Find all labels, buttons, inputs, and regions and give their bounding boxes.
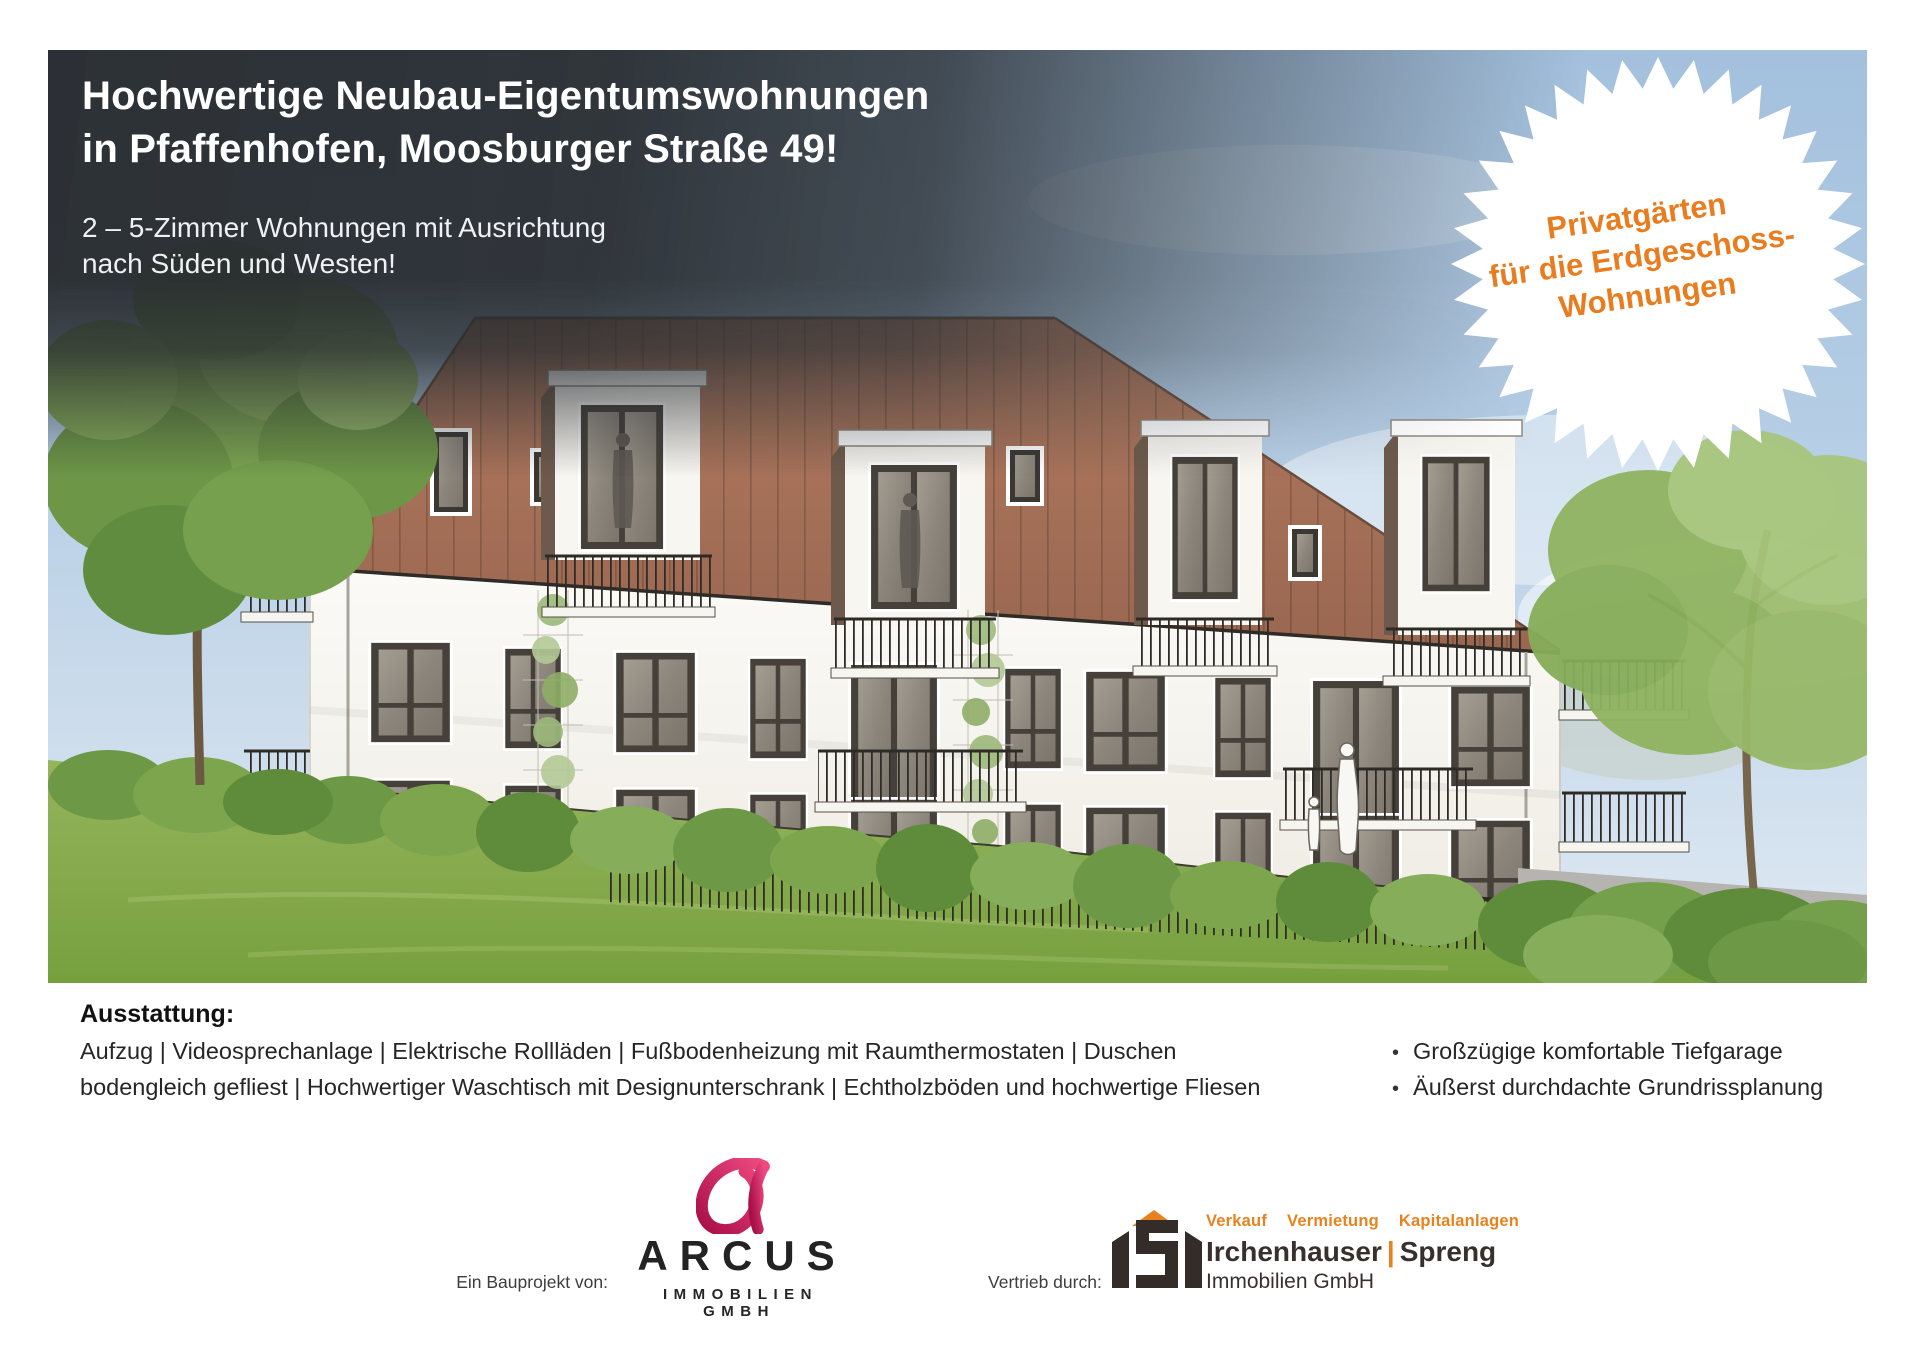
service-item: Verkauf [1206,1212,1267,1230]
hero-title-line1: Hochwertige Neubau-Eigentumswohnungen [82,70,929,123]
arcus-ribbon-icon [696,1158,782,1234]
features-bullet-item: •Großzügige komfortable Tiefgarage [1392,1038,1783,1065]
hero-subtitle: 2 – 5-Zimmer Wohnungen mit Ausrichtung n… [82,210,606,282]
distributor-logo-text: VerkaufVermietungKapitalanlagen Irchenha… [1206,1212,1626,1294]
features-bullet-text: Äußerst durchdachte Grundrissplanung [1413,1074,1823,1100]
bullet-icon: • [1392,1042,1399,1065]
bullet-icon: • [1392,1078,1399,1101]
hero-subtitle-line1: 2 – 5-Zimmer Wohnungen mit Ausrichtung [82,210,606,246]
hero-title: Hochwertige Neubau-Eigentumswohnungen in… [82,70,929,176]
distributor-subline: Immobilien GmbH [1206,1270,1626,1294]
features-line: Aufzug | Videosprechanlage | Elektrische… [80,1038,1176,1065]
features-line: bodengleich gefliest | Hochwertiger Wasc… [80,1074,1260,1101]
arcus-logo: ARCUS IMMOBILIEN GMBH [620,1158,858,1320]
divider-pipe: | [1387,1236,1395,1267]
distributor-label: Vertrieb durch: [988,1272,1102,1293]
service-item: Kapitalanlagen [1399,1212,1519,1230]
service-item: Vermietung [1287,1212,1379,1230]
features-bullet-text: Großzügige komfortable Tiefgarage [1413,1038,1783,1064]
distributor-name: Irchenhauser|Spreng [1206,1238,1626,1266]
hero-rendering: Hochwertige Neubau-Eigentumswohnungen in… [48,50,1867,983]
distributor-name-left: Irchenhauser [1206,1236,1382,1267]
features-heading: Ausstattung: [80,1000,234,1029]
developer-label: Ein Bauprojekt von: [360,1272,608,1293]
arcus-subline: IMMOBILIEN GMBH [620,1286,858,1320]
isi-logo-icon [1112,1208,1202,1288]
features-bullet-item: •Äußerst durchdachte Grundrissplanung [1392,1074,1823,1101]
arcus-wordmark: ARCUS [620,1232,858,1280]
distributor-name-right: Spreng [1400,1236,1496,1267]
distributor-services: VerkaufVermietungKapitalanlagen [1206,1212,1626,1231]
hero-title-line2: in Pfaffenhofen, Moosburger Straße 49! [82,123,929,176]
flyer-page: Hochwertige Neubau-Eigentumswohnungen in… [0,0,1920,1357]
hero-subtitle-line2: nach Süden und Westen! [82,246,606,282]
